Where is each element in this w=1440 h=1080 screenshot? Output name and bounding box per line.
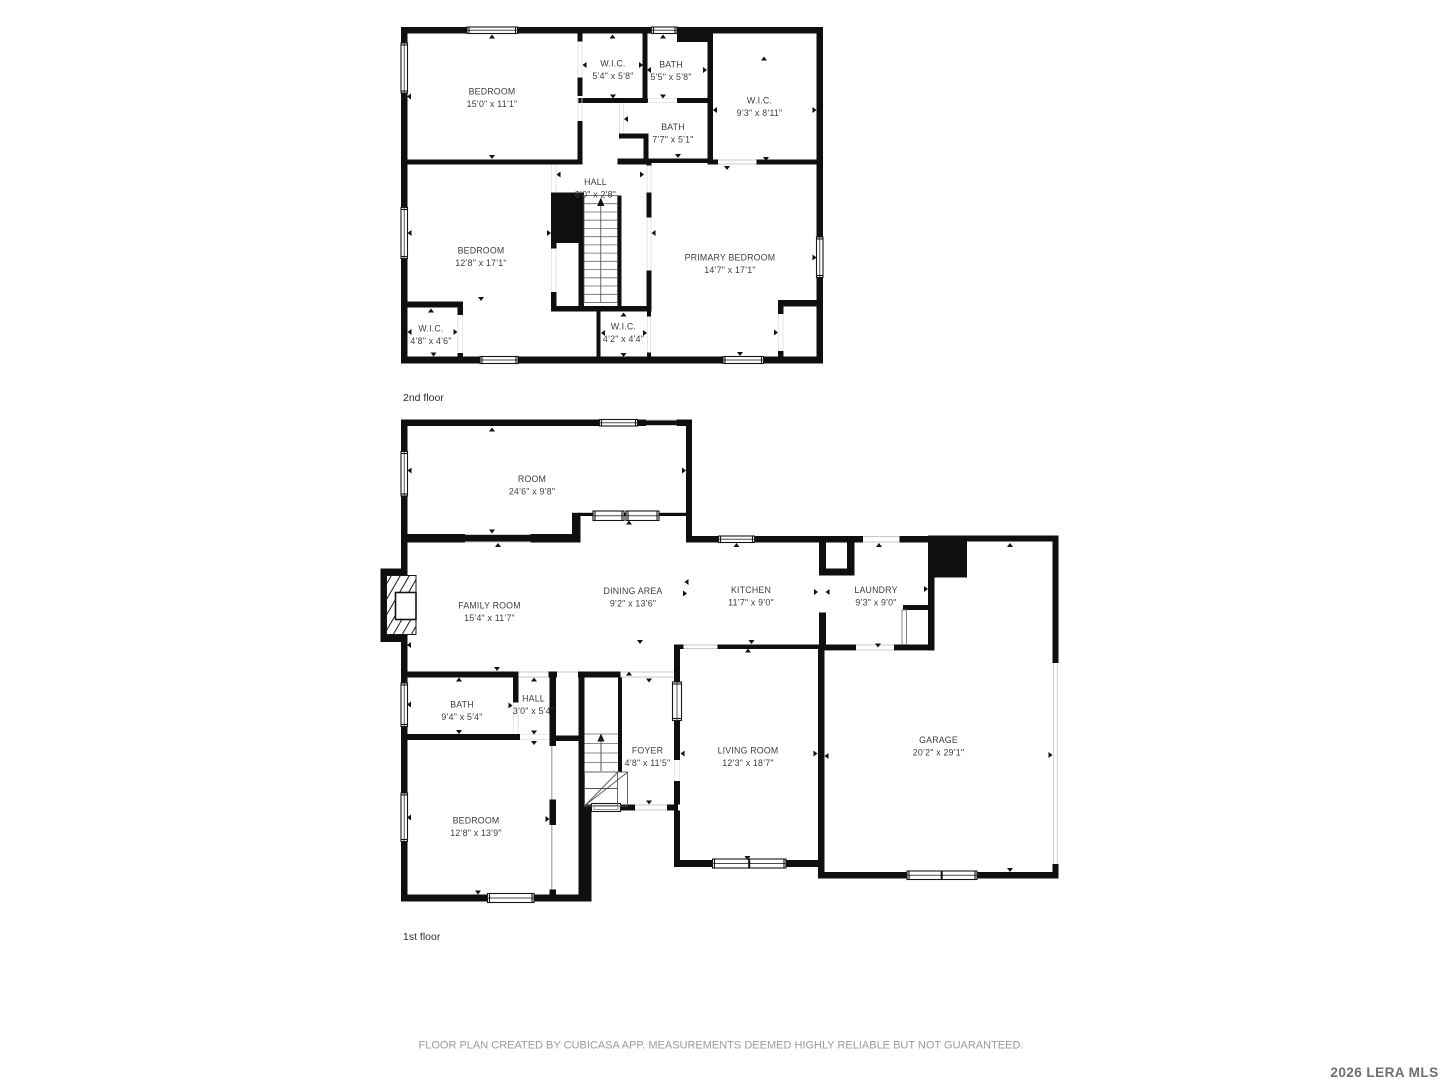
svg-text:BEDROOM: BEDROOM — [469, 87, 516, 97]
svg-text:FAMILY ROOM: FAMILY ROOM — [458, 601, 521, 611]
svg-text:20’2" x 29’1": 20’2" x 29’1" — [913, 748, 964, 758]
svg-text:BEDROOM: BEDROOM — [458, 246, 505, 256]
svg-text:HALL: HALL — [584, 177, 607, 187]
svg-text:LAUNDRY: LAUNDRY — [854, 585, 897, 595]
svg-text:9’3" x 9’0": 9’3" x 9’0" — [855, 598, 896, 608]
svg-text:5’5" x 5’8": 5’5" x 5’8" — [650, 72, 691, 82]
svg-text:GARAGE: GARAGE — [919, 735, 958, 745]
svg-text:W.I.C.: W.I.C. — [747, 96, 772, 106]
svg-text:3’0" x 5’4": 3’0" x 5’4" — [513, 706, 554, 716]
svg-text:4’2" x 4’4": 4’2" x 4’4" — [603, 334, 644, 344]
svg-text:BATH: BATH — [659, 60, 683, 70]
svg-text:KITCHEN: KITCHEN — [731, 585, 771, 595]
svg-text:12’3" x 18’7": 12’3" x 18’7" — [722, 758, 773, 768]
svg-text:8’0" x 2’8": 8’0" x 2’8" — [575, 190, 616, 200]
svg-text:9’3" x 8’11": 9’3" x 8’11" — [737, 108, 783, 118]
svg-text:7’7" x 5’1": 7’7" x 5’1" — [652, 135, 693, 145]
svg-text:12’8" x 17’1": 12’8" x 17’1" — [455, 258, 506, 268]
svg-text:LIVING ROOM: LIVING ROOM — [718, 746, 779, 756]
svg-text:W.I.C.: W.I.C. — [418, 324, 443, 334]
svg-text:1st floor: 1st floor — [403, 931, 441, 943]
svg-text:ROOM: ROOM — [518, 474, 546, 484]
svg-text:2026 LERA MLS: 2026 LERA MLS — [1330, 1065, 1438, 1080]
svg-text:4’8" x 11’5": 4’8" x 11’5" — [625, 758, 671, 768]
svg-text:9’2" x 13’6": 9’2" x 13’6" — [610, 599, 656, 609]
svg-text:12’8" x 13’9": 12’8" x 13’9" — [450, 828, 501, 838]
svg-text:BATH: BATH — [661, 122, 685, 132]
svg-text:5’4" x 5’8": 5’4" x 5’8" — [592, 71, 633, 81]
svg-text:11’7" x 9’0": 11’7" x 9’0" — [728, 598, 774, 608]
svg-text:W.I.C.: W.I.C. — [600, 59, 625, 69]
svg-text:15’0" x 11’1": 15’0" x 11’1" — [467, 99, 518, 109]
svg-text:15’4" x 11’7": 15’4" x 11’7" — [464, 613, 515, 623]
svg-text:BATH: BATH — [450, 700, 474, 710]
svg-text:4’8" x 4’6": 4’8" x 4’6" — [410, 336, 451, 346]
svg-text:14’7" x 17’1": 14’7" x 17’1" — [704, 265, 755, 275]
svg-text:FOYER: FOYER — [632, 746, 663, 756]
svg-text:2nd floor: 2nd floor — [403, 392, 444, 404]
svg-text:BEDROOM: BEDROOM — [453, 816, 500, 826]
svg-text:W.I.C.: W.I.C. — [611, 322, 636, 332]
svg-text:FLOOR PLAN CREATED BY CUBICASA: FLOOR PLAN CREATED BY CUBICASA APP. MEAS… — [419, 1040, 1024, 1052]
svg-text:HALL: HALL — [522, 694, 545, 704]
svg-text:24’6" x 9’8": 24’6" x 9’8" — [509, 487, 555, 497]
svg-text:DINING AREA: DINING AREA — [604, 586, 663, 596]
svg-text:9’4" x 5’4": 9’4" x 5’4" — [441, 712, 482, 722]
svg-text:PRIMARY BEDROOM: PRIMARY BEDROOM — [685, 253, 776, 263]
